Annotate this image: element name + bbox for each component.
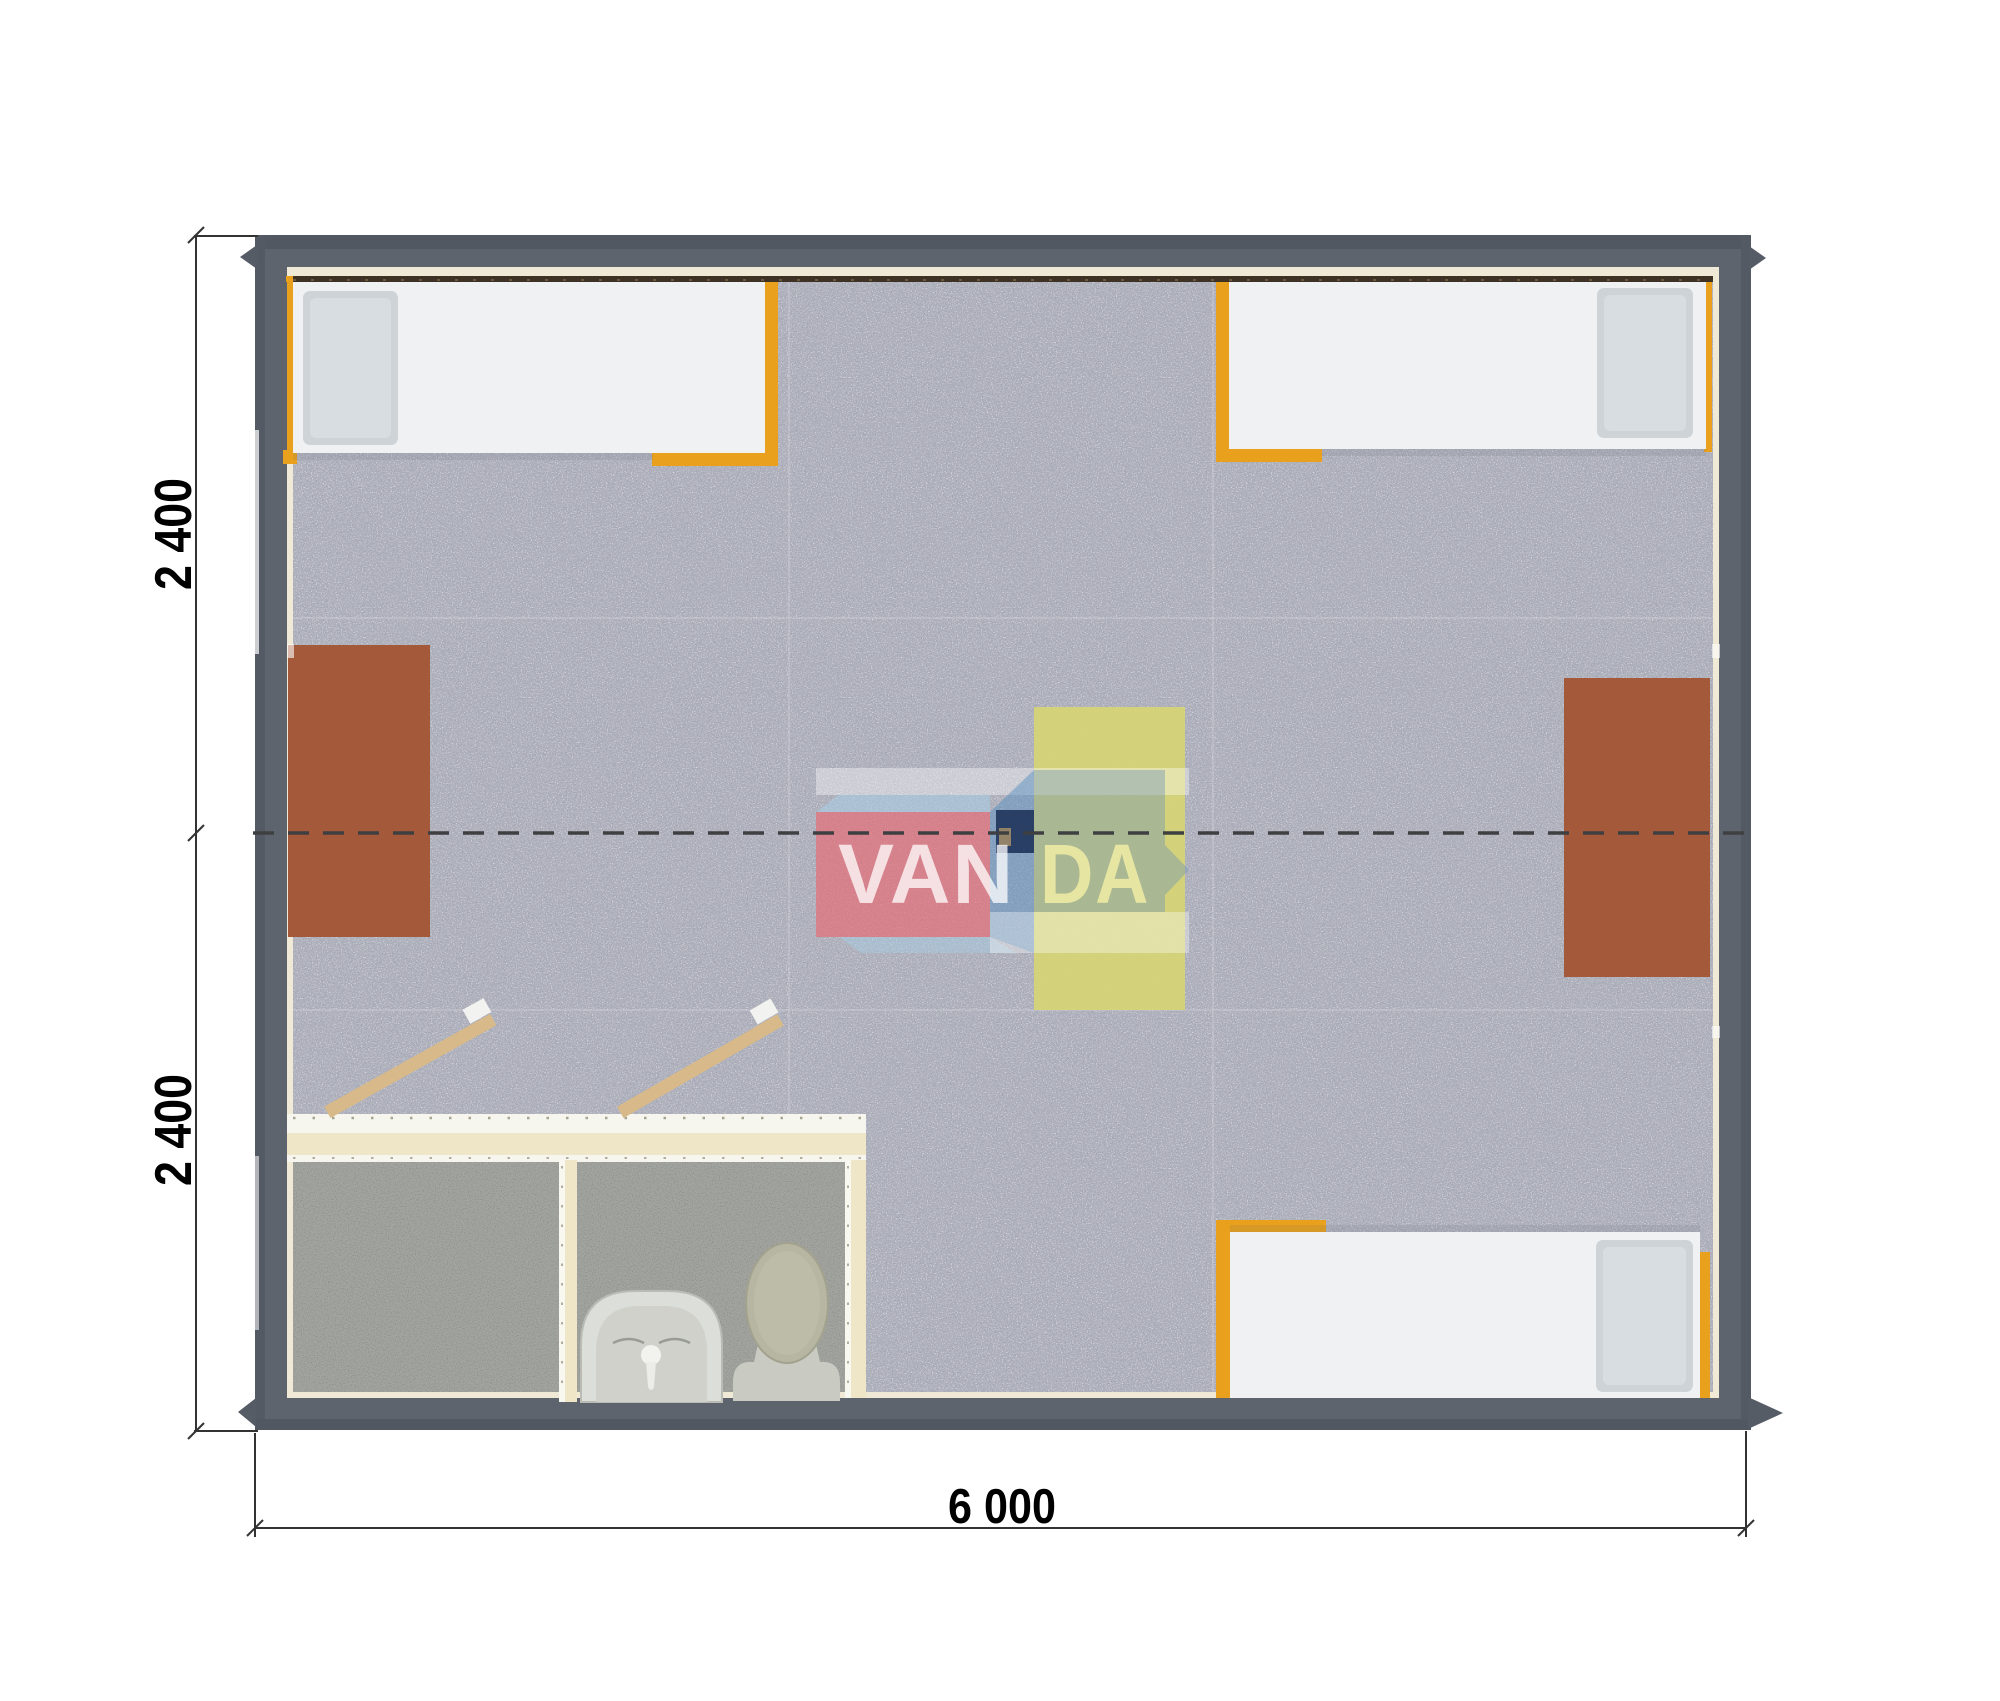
svg-text:DA: DA [1040,827,1150,921]
svg-text:2 400: 2 400 [145,1074,203,1186]
svg-text:6 000: 6 000 [948,1478,1056,1533]
svg-text:VAN: VAN [838,827,1015,921]
svg-text:2 400: 2 400 [145,478,203,590]
